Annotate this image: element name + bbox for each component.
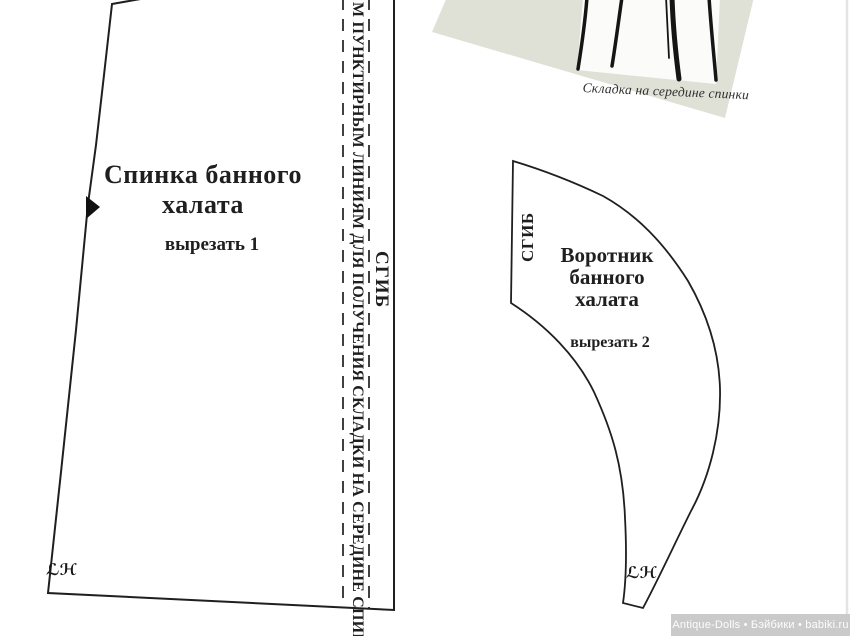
collar-piece-title-line1: Воротник xyxy=(545,244,669,266)
scanned-pattern-page: Спинка банного халата вырезать 1 М ПУНКТ… xyxy=(0,0,850,636)
collar-piece-cut-label: вырезать 2 xyxy=(545,334,675,352)
site-watermark-text: Antique-Dolls • Бэйбики • babiki.ru xyxy=(672,619,848,631)
back-piece-title: Спинка банного халата xyxy=(88,160,318,220)
back-piece-cut-label: вырезать 1 xyxy=(112,234,312,256)
back-piece-fold-label: СГИБ xyxy=(370,251,392,308)
back-piece-initials: ℒℋ xyxy=(46,560,77,579)
collar-piece-fold-label: СГИБ xyxy=(518,212,538,262)
collar-piece-initials: ℒℋ xyxy=(626,563,657,582)
collar-piece-title-line2: банного xyxy=(545,266,669,288)
robe-drawing-area xyxy=(577,0,720,84)
collar-piece-outline xyxy=(511,161,720,608)
collar-piece-title: Воротник банного халата xyxy=(545,244,669,310)
back-piece-pleat-instruction: М ПУНКТИРНЫМ ЛИНИЯМ ДЛЯ ПОЛУЧЕНИЯ СКЛАДК… xyxy=(348,2,366,636)
collar-piece-title-line3: халата xyxy=(545,288,669,310)
back-piece-title-line2: халата xyxy=(88,190,318,220)
back-piece-outline xyxy=(48,0,394,610)
site-watermark: Antique-Dolls • Бэйбики • babiki.ru xyxy=(671,614,850,636)
back-piece-title-line1: Спинка банного xyxy=(88,160,318,190)
